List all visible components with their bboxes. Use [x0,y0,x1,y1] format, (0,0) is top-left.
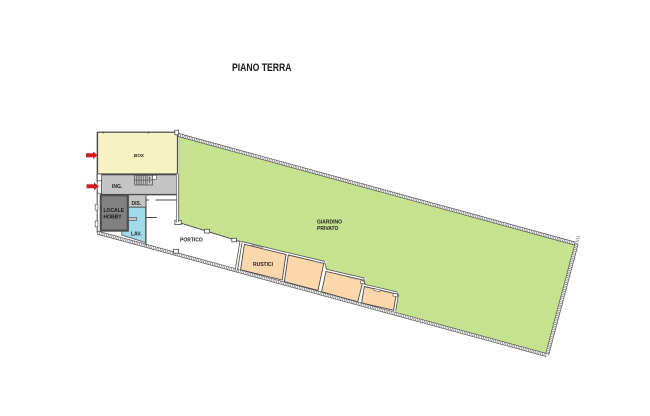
svg-text:HOBBY: HOBBY [104,214,123,220]
svg-text:ING.: ING. [112,184,123,190]
svg-text:BOX: BOX [134,153,145,158]
svg-text:PIANO TERRA: PIANO TERRA [232,62,292,74]
svg-text:PORTICO: PORTICO [180,238,203,244]
svg-text:RUSTICI: RUSTICI [253,262,274,268]
svg-text:DIS.: DIS. [132,201,142,207]
svg-text:LAV.: LAV. [131,231,142,237]
svg-text:PRIVATO: PRIVATO [317,226,339,232]
svg-text:LOCALE: LOCALE [104,208,125,214]
svg-text:GIARDINO: GIARDINO [317,220,342,226]
